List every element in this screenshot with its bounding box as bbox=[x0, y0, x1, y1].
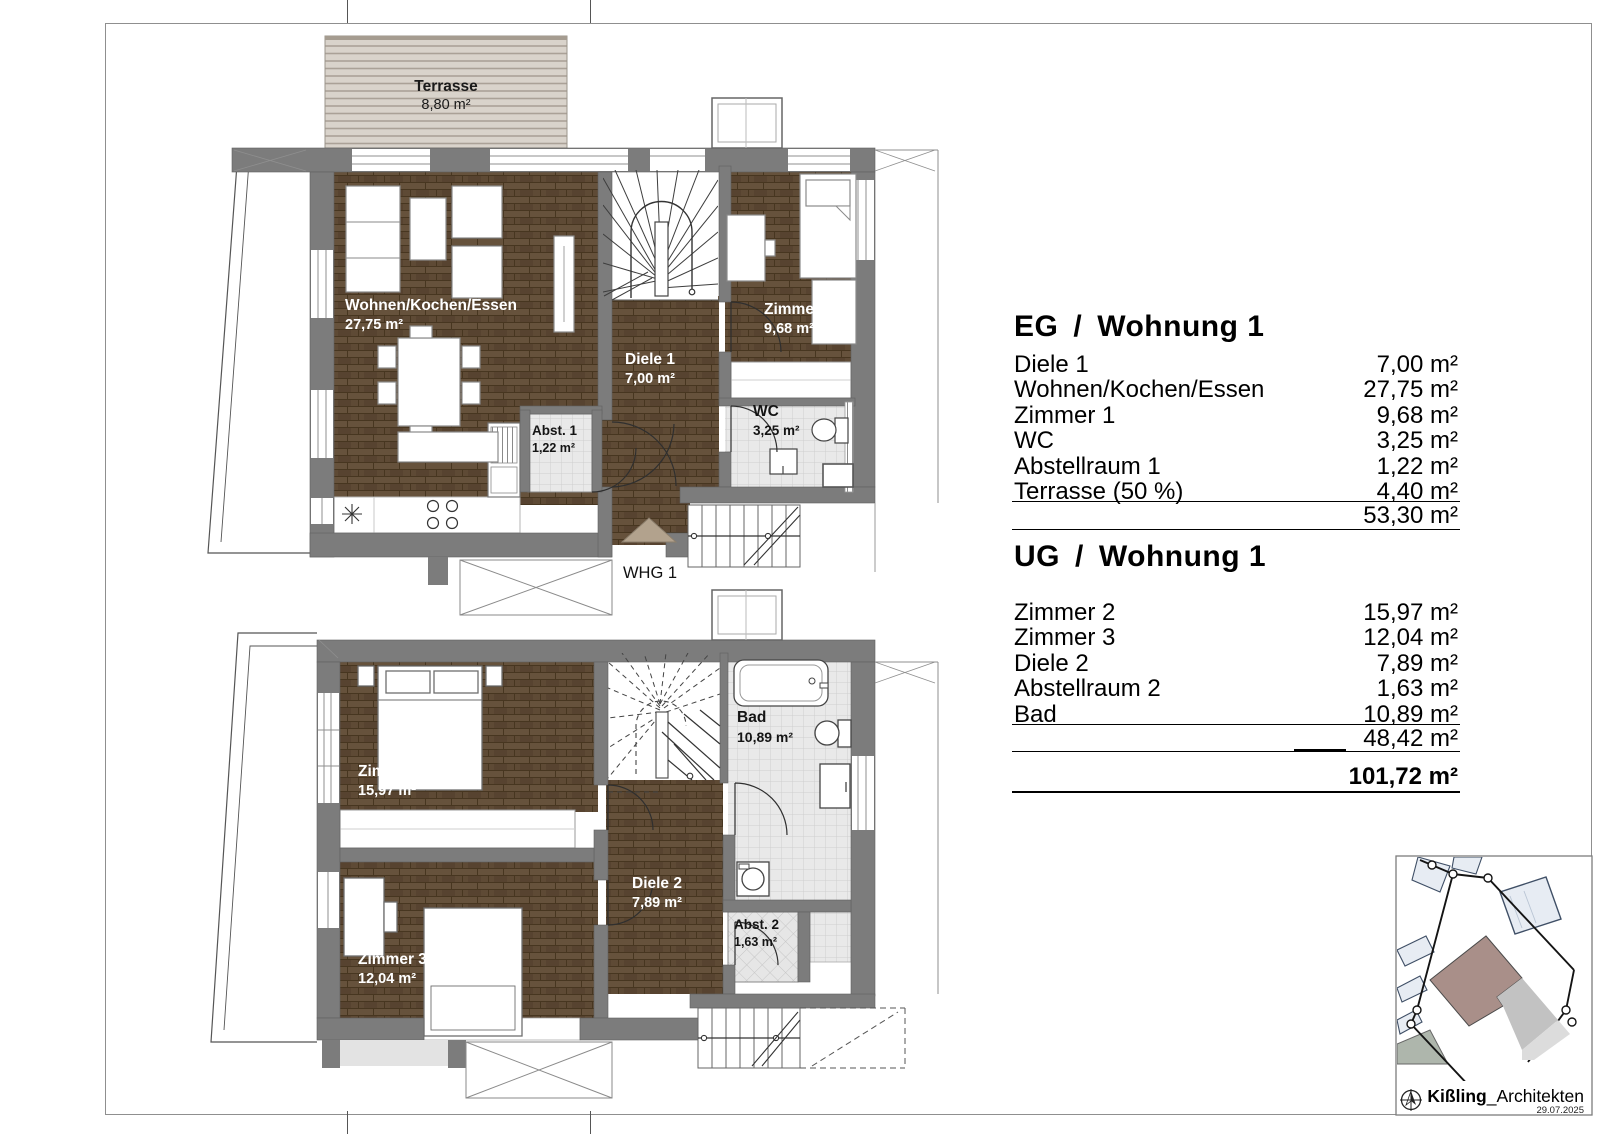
room-label-zimmer2: Zimmer 2 15,97 m² bbox=[358, 762, 427, 802]
room-label-abst1: Abst. 1 1,22 m² bbox=[532, 422, 577, 456]
room-label-diele2: Diele 2 7,89 m² bbox=[632, 874, 682, 914]
grand-total: 101,72 m² bbox=[1014, 764, 1458, 789]
table-row: Zimmer 19,68 m² bbox=[1014, 403, 1458, 428]
eg-total: 53,30 m² bbox=[1014, 503, 1458, 528]
table-row: Abstellraum 11,22 m² bbox=[1014, 454, 1458, 479]
eg-table-rows: Diele 17,00 m² Wohnen/Kochen/Essen27,75 … bbox=[1014, 352, 1458, 504]
floorplan-drawing bbox=[0, 0, 1600, 1134]
ug-table-title: UG/Wohnung 1 bbox=[1014, 540, 1266, 574]
table-row: Wohnen/Kochen/Essen27,75 m² bbox=[1014, 377, 1458, 402]
room-label-diele1: Diele 1 7,00 m² bbox=[625, 350, 675, 390]
table-rule bbox=[1012, 529, 1460, 530]
table-row: Diele 27,89 m² bbox=[1014, 651, 1458, 676]
table-row: Diele 17,00 m² bbox=[1014, 352, 1458, 377]
lamp-symbol-icon bbox=[342, 504, 362, 524]
room-label-wc: WC 3,25 m² bbox=[753, 402, 800, 440]
room-label-wohnen: Wohnen/Kochen/Essen 27,75 m² bbox=[345, 296, 517, 336]
table-rule bbox=[1012, 791, 1460, 793]
unit-marker-label: WHG 1 bbox=[608, 564, 692, 583]
eg-table-title: EG/Wohnung 1 bbox=[1014, 310, 1264, 344]
table-row: Zimmer 312,04 m² bbox=[1014, 625, 1458, 650]
plan-date: 29.07.2025 bbox=[1464, 1105, 1584, 1116]
terrace-label: Terrasse 8,80 m² bbox=[378, 78, 514, 114]
ug-plan-graphics bbox=[211, 590, 938, 1098]
plan-sheet: Terrasse 8,80 m² Wohnen/Kochen/Essen 27,… bbox=[0, 0, 1600, 1134]
table-row: WC3,25 m² bbox=[1014, 428, 1458, 453]
room-label-zimmer3: Zimmer 3 12,04 m² bbox=[358, 950, 427, 990]
ug-table-rows: Zimmer 215,97 m² Zimmer 312,04 m² Diele … bbox=[1014, 600, 1458, 727]
room-label-abst2: Abst. 2 1,63 m² bbox=[734, 916, 779, 950]
ug-subtotal: 48,42 m² bbox=[1014, 726, 1458, 751]
table-rule bbox=[1012, 751, 1460, 752]
table-row: Zimmer 215,97 m² bbox=[1014, 600, 1458, 625]
architect-firm-label: Kißling_Architekten bbox=[1398, 1086, 1584, 1107]
room-label-zimmer1: Zimmer 1 9,68 m² bbox=[764, 300, 833, 340]
table-row: Abstellraum 21,63 m² bbox=[1014, 676, 1458, 701]
room-label-bad: Bad 10,89 m² bbox=[737, 708, 793, 747]
site-plan bbox=[1396, 856, 1592, 1115]
